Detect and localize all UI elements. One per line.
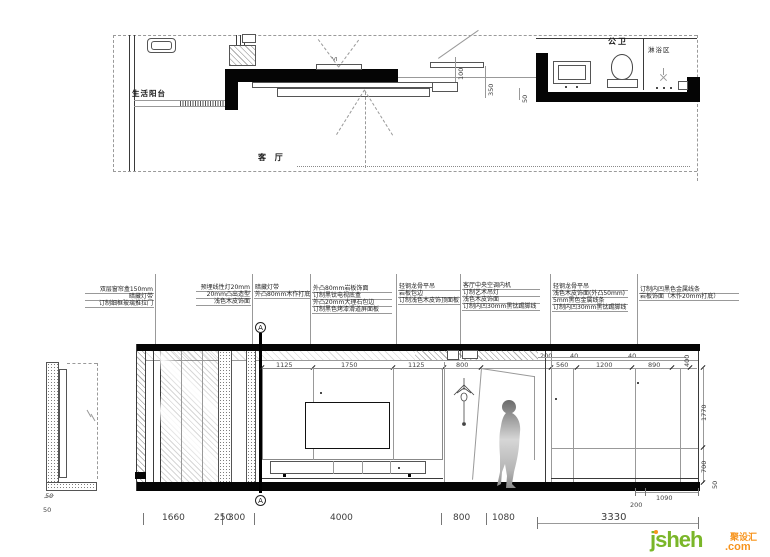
wall-section-detail (46, 362, 59, 486)
dim-line (538, 357, 686, 358)
note-col-1: 双层窗帘盒150mm 暗藏灯带 订制细框玻璃推拉门 (85, 287, 154, 308)
wall-joint (573, 368, 574, 482)
wall-joint (545, 351, 546, 482)
plan-wall-tv-return (225, 69, 238, 110)
view-cone-axis (365, 92, 366, 168)
cabinet-plan (432, 82, 458, 92)
dim-line (485, 66, 486, 98)
wall-joint (551, 351, 552, 482)
console-divider (390, 461, 391, 474)
detail-dashed-line (67, 363, 97, 364)
ac-unit-box (447, 350, 459, 360)
note-col-2: 预埋线性灯20mm 20mm凸出造型 浅色木皮饰面 (196, 285, 251, 306)
wall-section-panel (59, 369, 67, 478)
wall-joint (635, 368, 636, 482)
dim-1080: 1080 (492, 513, 515, 523)
note-col-8: 订制内凹黑色金属线条 岩板饰面（木作20mm打底） (639, 287, 739, 301)
dim-tick (254, 513, 255, 525)
doorway-perspective-line (481, 368, 535, 377)
note-col-4: 外凸80mm岩板饰面 订制黑钛电视底盒 外凸20mm大理石包边 订制黑色烤漆滑道… (312, 286, 392, 314)
door-frame-line (153, 351, 154, 482)
dim-1660: 1660 (162, 513, 185, 523)
pipe-line (240, 35, 241, 45)
panel-joint (444, 362, 445, 482)
dim-800-bottom: 800 (453, 513, 470, 523)
fixture-dot (576, 86, 578, 88)
note-col-5: 轻钢龙骨平吊 岩板包边 订制浅色木皮饰顶面板 (398, 284, 460, 305)
plan-wall-line (134, 35, 135, 171)
plan-wall-tv (225, 69, 398, 82)
section-marker-bottom: A (255, 495, 266, 506)
console-divider (362, 461, 363, 474)
vanity-basin (558, 65, 586, 80)
shower-head-symbol (663, 68, 664, 75)
stone-column (218, 351, 232, 482)
room-label-shower: 淋浴区 (648, 44, 671, 54)
dim-300: 300 (228, 513, 245, 523)
dim-tick (701, 480, 706, 485)
balcony-sink-basin (151, 41, 172, 50)
detail-dashed-line (97, 363, 98, 479)
person-silhouette (492, 398, 526, 490)
dim-50: 50 (521, 95, 529, 103)
dim-sub-1090: 1090 (656, 494, 673, 502)
stone-column (246, 351, 256, 482)
view-cone-line (318, 39, 339, 67)
dim-tick (645, 488, 646, 496)
dim-tick (635, 488, 636, 496)
wall-vent (242, 34, 256, 43)
tv-console (270, 461, 426, 474)
leader-dot (320, 392, 322, 394)
dim-tick (698, 488, 699, 496)
dim-tick (441, 513, 442, 525)
wall-face-line (398, 77, 537, 78)
dim-tick (537, 517, 538, 529)
console-leg (408, 474, 411, 477)
door-panel-joint (202, 351, 203, 482)
wall-horizontal-joint (551, 448, 698, 449)
detail-floor-bar (46, 482, 97, 491)
plan-boundary-bottom (113, 171, 697, 172)
leader-dot (555, 398, 557, 400)
fixture-dot (670, 87, 672, 89)
dim-sub-200: 200 (630, 501, 642, 509)
dim-40-a: 40 (570, 352, 578, 360)
dim-line (519, 88, 520, 100)
dim-200: 200 (540, 352, 552, 360)
leader-line (252, 274, 253, 345)
leader-line (550, 274, 551, 345)
plan-boundary-left (113, 35, 114, 172)
tv-screen (305, 402, 390, 449)
skirting-line (262, 478, 443, 479)
leader-dot (398, 467, 400, 469)
plan-wall-bath-bottom (536, 92, 700, 102)
dim-700: 700 (700, 461, 708, 473)
logo-tld: .com (725, 541, 751, 553)
leader-line (396, 274, 397, 345)
dim-total-3330: 3330 (601, 512, 626, 523)
break-symbol (91, 414, 96, 421)
fixture-dot (663, 87, 665, 89)
ac-grille-box (462, 350, 478, 359)
shower-partition (643, 38, 644, 90)
dim-560: 560 (556, 361, 568, 369)
toilet-bowl (611, 54, 633, 80)
dim-1200: 1200 (596, 361, 613, 369)
elevation-right-edge (698, 351, 699, 482)
plan-wall-bath-corner (687, 77, 700, 92)
plan-tv-console (277, 88, 430, 97)
glass-sliding-door (160, 351, 218, 482)
leader-line (637, 274, 638, 345)
dim-350: 350 (487, 84, 495, 96)
console-divider (333, 461, 334, 474)
dim-4000: 4000 (330, 513, 353, 523)
room-label-bath: 公卫 (608, 36, 628, 47)
skirting-line (551, 478, 698, 479)
note-col-3: 暗藏灯带 外凸80mm木作打底 (254, 285, 310, 299)
leader-line (310, 274, 311, 345)
site-logo[interactable]: jsheh 聚设汇 .com (645, 524, 770, 557)
console-leg (283, 474, 286, 477)
dim-890: 890 (648, 361, 660, 369)
toilet-tank (607, 79, 638, 88)
plan-boundary-right (697, 35, 698, 181)
fixture-dot (656, 87, 658, 89)
logo-j-dot (654, 530, 658, 534)
door-panel-joint (181, 351, 182, 482)
washer-unit (229, 45, 256, 66)
leader-line (155, 274, 156, 345)
panel-joint (393, 368, 394, 460)
dim-40-b: 40 (628, 352, 636, 360)
detail-dim-50b: 50 (43, 506, 51, 514)
door-floor-stop (135, 472, 146, 479)
dim-line (455, 57, 456, 82)
floor-slab (136, 482, 700, 491)
pendant-lamp-sketch (450, 378, 478, 430)
plan-wall-line (129, 35, 130, 171)
threshold-line (134, 106, 226, 107)
pipe-line (236, 35, 237, 45)
dim-50-right: 50 (711, 481, 719, 489)
floor-drain (678, 81, 688, 90)
dim-1770: 1770 (700, 404, 708, 421)
note-col-6: 客厅中央空调内机 订制艺术吊灯 浅色木皮饰面 订制内凹30mm黑钛踢脚线 (462, 283, 540, 311)
room-label-balcony: 生活阳台 (132, 88, 166, 99)
note-col-7: 轻钢龙骨平吊 浅色木皮饰面(外凸50mm) 5mm黑色金属线条 订制内凹30mm… (552, 284, 628, 312)
fixture-dot (565, 86, 567, 88)
wall-end-section (137, 351, 146, 482)
room-label-living: 客 厅 (258, 152, 286, 163)
section-marker-top: A (255, 322, 266, 333)
dim-tick (486, 513, 487, 525)
wall-joint (680, 368, 681, 482)
door-track-hatch (180, 101, 225, 106)
leader-dot (637, 382, 639, 384)
drawing-canvas: 生活阳台 VI 客 厅 100 350 50 公卫 淋浴区 (0, 0, 770, 557)
living-dotted-line (297, 166, 690, 167)
dim-400: 400 (683, 355, 691, 367)
dim-100: 100 (457, 68, 465, 80)
dim-tick (143, 513, 144, 525)
doorway-perspective-line (534, 376, 535, 460)
